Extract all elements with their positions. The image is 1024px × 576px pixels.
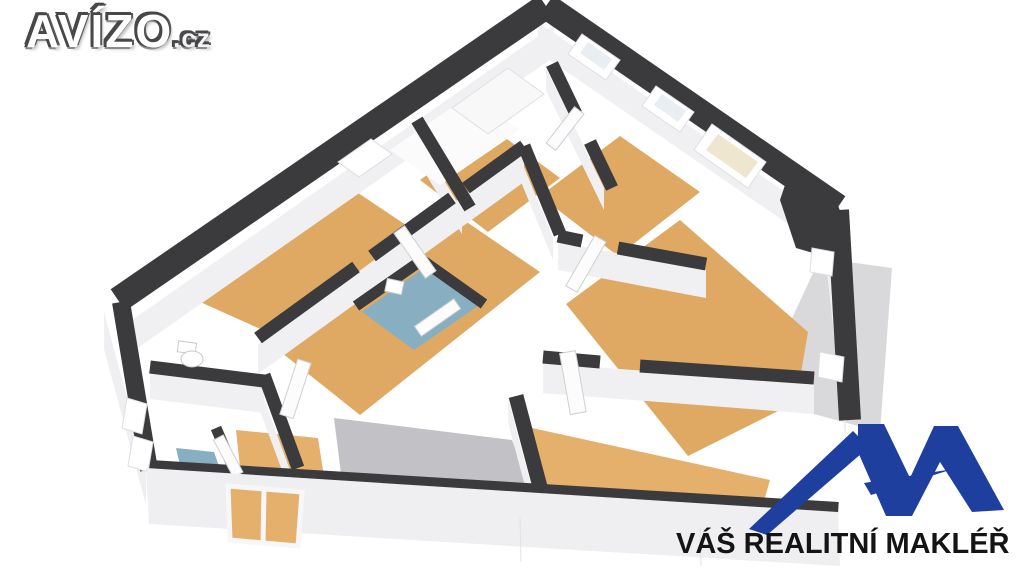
window-east-2 bbox=[818, 352, 844, 382]
door-gray-room bbox=[280, 359, 311, 418]
avizo-logo-suffix: .cz bbox=[173, 23, 211, 53]
window-east-1 bbox=[810, 248, 834, 276]
agent-tagline: VÁŠ REALITNÍ MAKLÉŘ bbox=[676, 528, 1020, 561]
page: AVÍZO.cz VÁŠ REALITNÍ MAKLÉŘ bbox=[0, 0, 1024, 576]
floorplan-3d-render bbox=[0, 0, 1024, 576]
window-west-2 bbox=[128, 436, 153, 472]
avizo-logo: AVÍZO.cz bbox=[26, 8, 211, 54]
balcony bbox=[228, 486, 302, 546]
bathroom-sink bbox=[385, 278, 404, 294]
toilet bbox=[177, 341, 203, 367]
window-west-1 bbox=[122, 398, 147, 434]
avizo-logo-text: AVÍZO bbox=[26, 5, 173, 57]
